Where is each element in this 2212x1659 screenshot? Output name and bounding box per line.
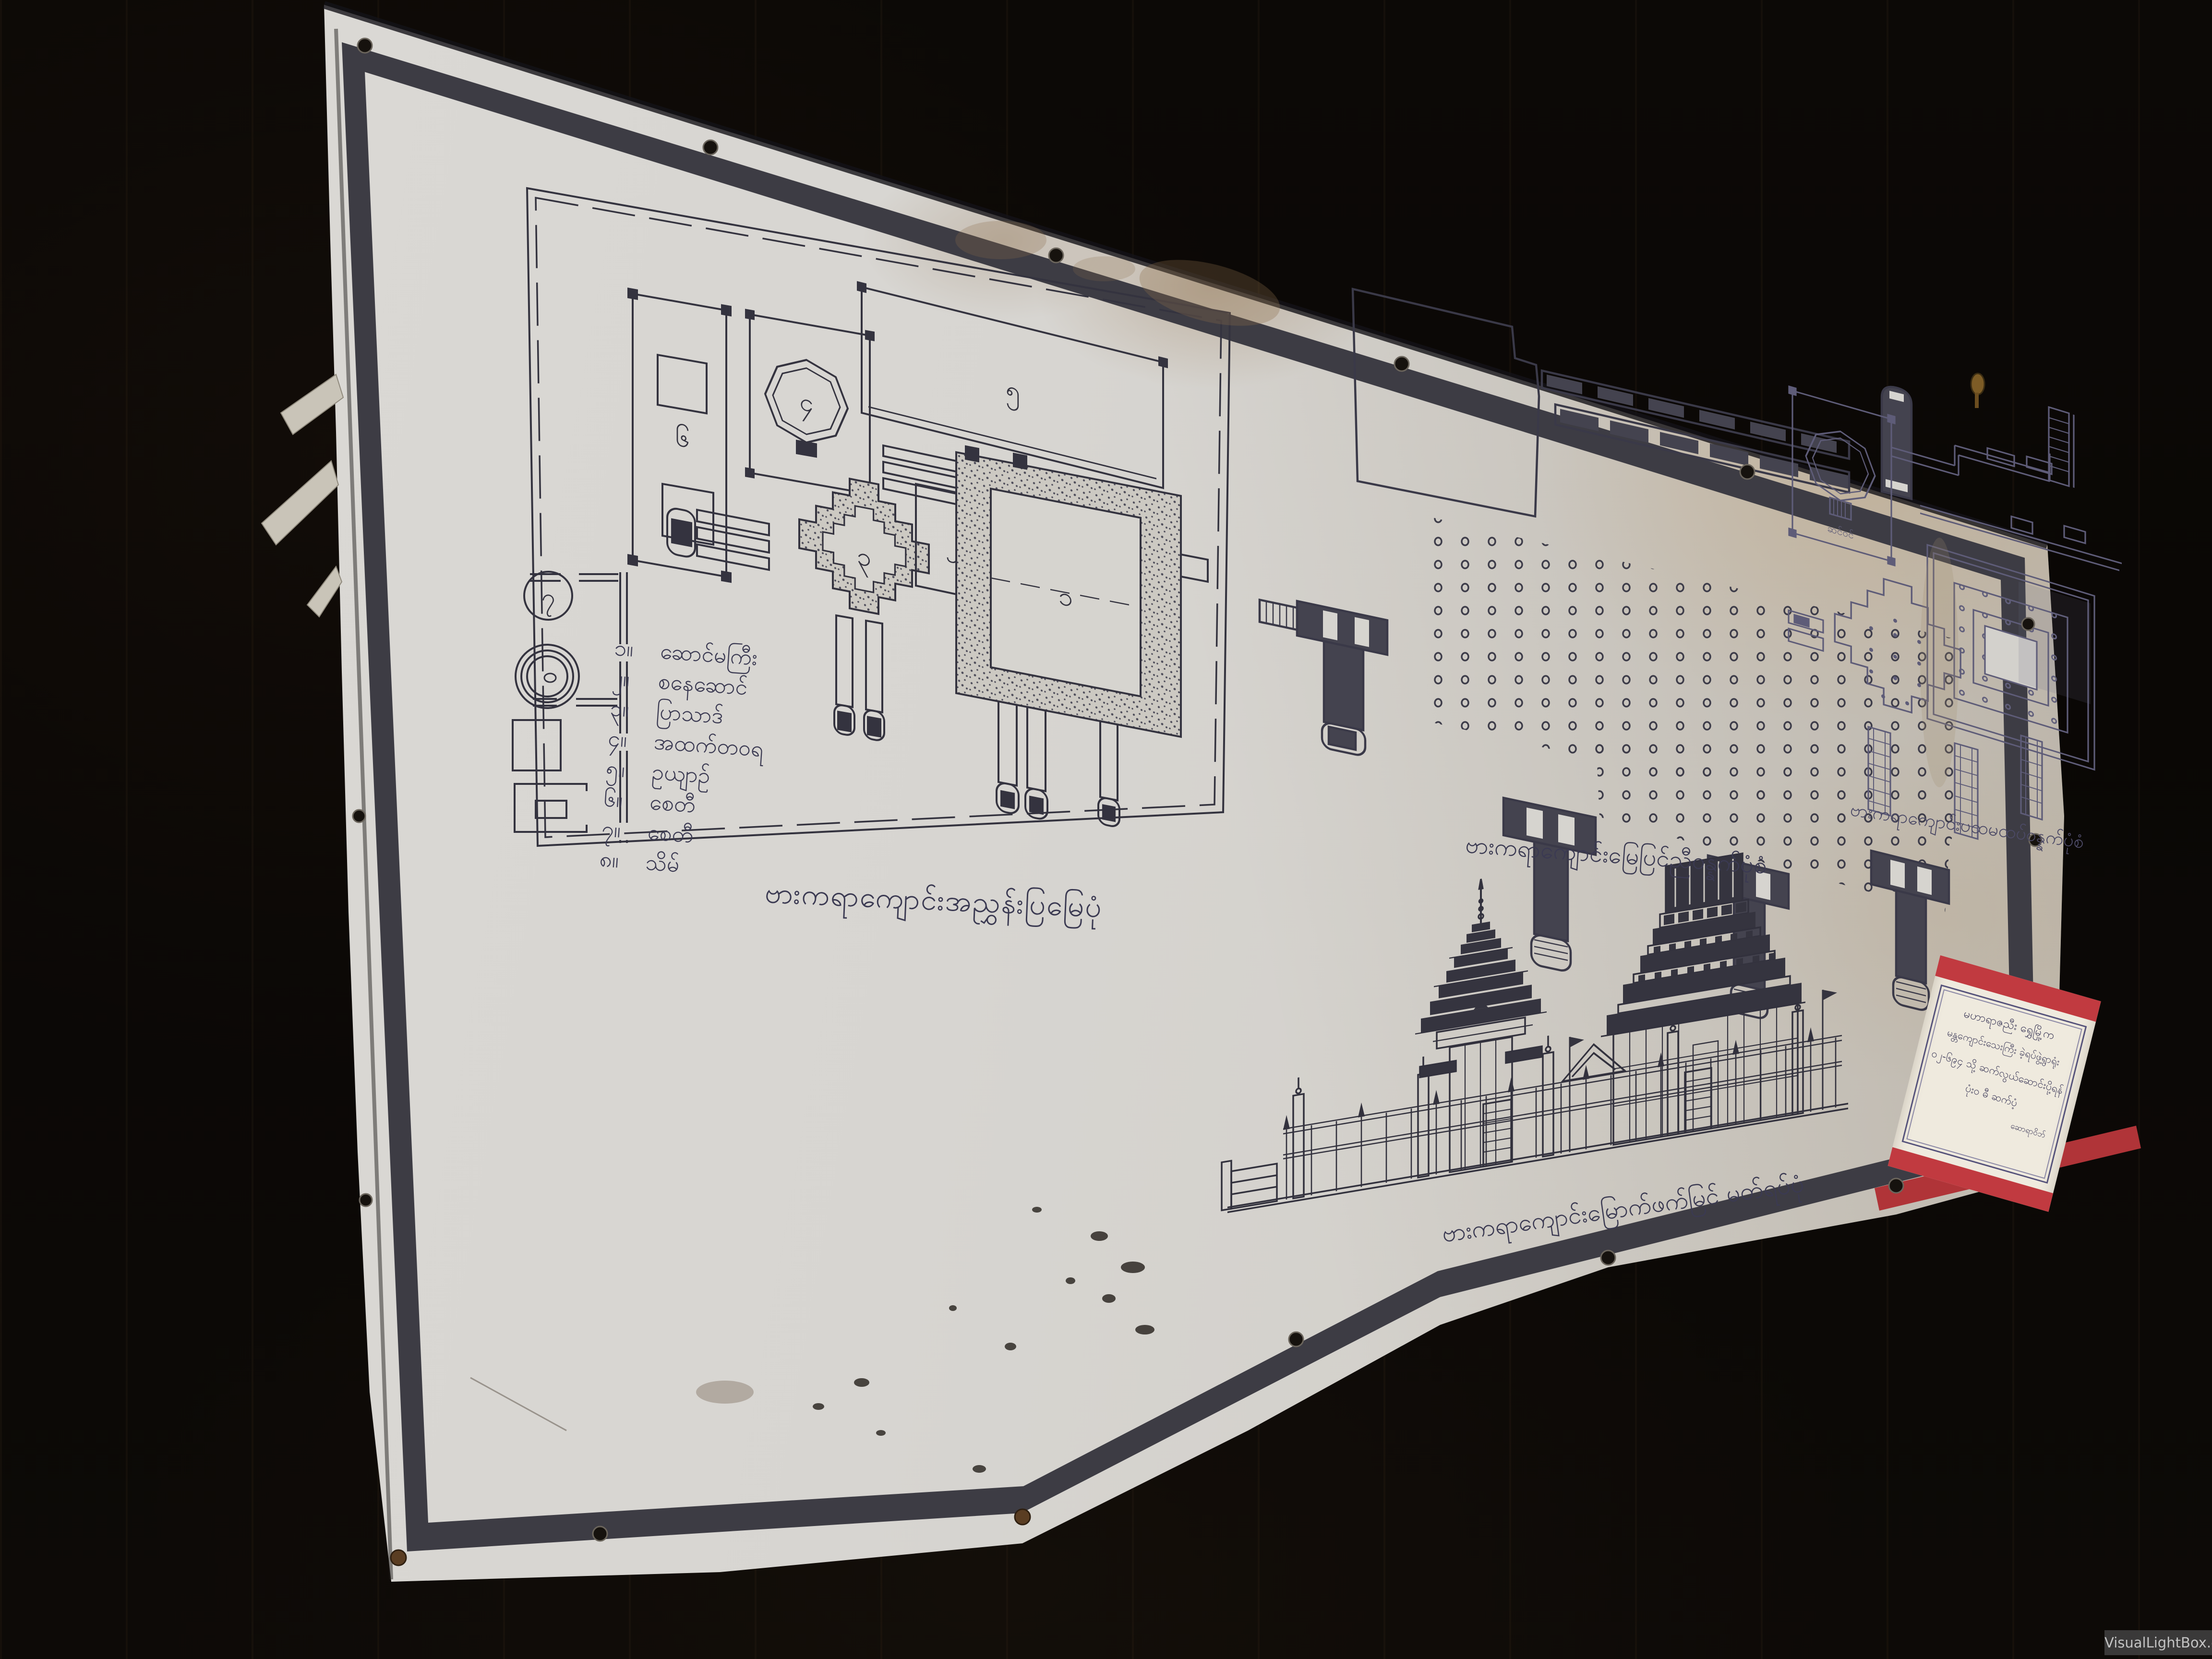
label-stupa-circle: ၇ — [541, 583, 555, 617]
legend-label: ဥယျာဉ် — [651, 757, 711, 791]
legend-number: ၆။ — [603, 783, 651, 817]
pyatthat-cross: ၃ — [799, 469, 929, 624]
label-main-hall: ၁ — [1058, 580, 1073, 613]
banner-artwork: ၇ ၆ — [0, 0, 2212, 1659]
legend-number: ၂။ — [611, 663, 659, 697]
legend-number: ၄။ — [607, 723, 655, 757]
banner-straps — [262, 374, 343, 617]
ordination-hall-shape — [515, 784, 587, 832]
legend-number: ၅။ — [605, 753, 653, 787]
legend-number: ၈။ — [599, 844, 647, 878]
octagon-room: ၄ — [746, 310, 874, 499]
legend-number: ၃။ — [609, 693, 657, 727]
label-octagon: ၄ — [799, 387, 813, 424]
legend-label: သိမ် — [645, 847, 681, 880]
upper-top-stair — [2049, 407, 2074, 488]
label-garden: ၅ — [1006, 373, 1020, 413]
main-hall-platform: ၁ — [956, 443, 1208, 852]
west-entrance-stair — [1260, 593, 1387, 761]
legend-label: ပြာသာဒ် — [655, 696, 724, 731]
legend-number: ၁။ — [613, 633, 661, 666]
label-stupa-enclosure: ၆ — [675, 421, 690, 454]
west-stairs — [667, 504, 769, 573]
ground-plan-drawing — [1260, 289, 1958, 1025]
legend-label: စေတီ — [647, 817, 695, 851]
stair-tower — [1882, 384, 1911, 499]
nail — [1971, 373, 1984, 408]
south-stairs — [834, 615, 884, 741]
photograph-of-monastery-plan-banner: ၇ ၆ — [0, 0, 2212, 1659]
fence-pillars — [1293, 993, 1803, 1199]
legend-number: ၇။ — [601, 814, 649, 847]
pyatthat-spire — [1415, 868, 1547, 1178]
south-entrance-stair-1 — [1503, 798, 1596, 978]
legend-label: စေတီ — [649, 787, 697, 820]
plan-legend: ၁။ဆောင်မကြီး ၂။စနေဆောင် ၃။ပြာသာဒ် ၄။အထက်… — [599, 633, 771, 885]
garden-outline: ၅ — [858, 282, 1167, 489]
watermark: VisualLightBox.com — [2104, 1630, 2212, 1655]
notice-text-frame: မဟာရာဇညီး ရွှေမြို့က မန္တကျောင်းသေးကြီး … — [1902, 985, 2087, 1184]
